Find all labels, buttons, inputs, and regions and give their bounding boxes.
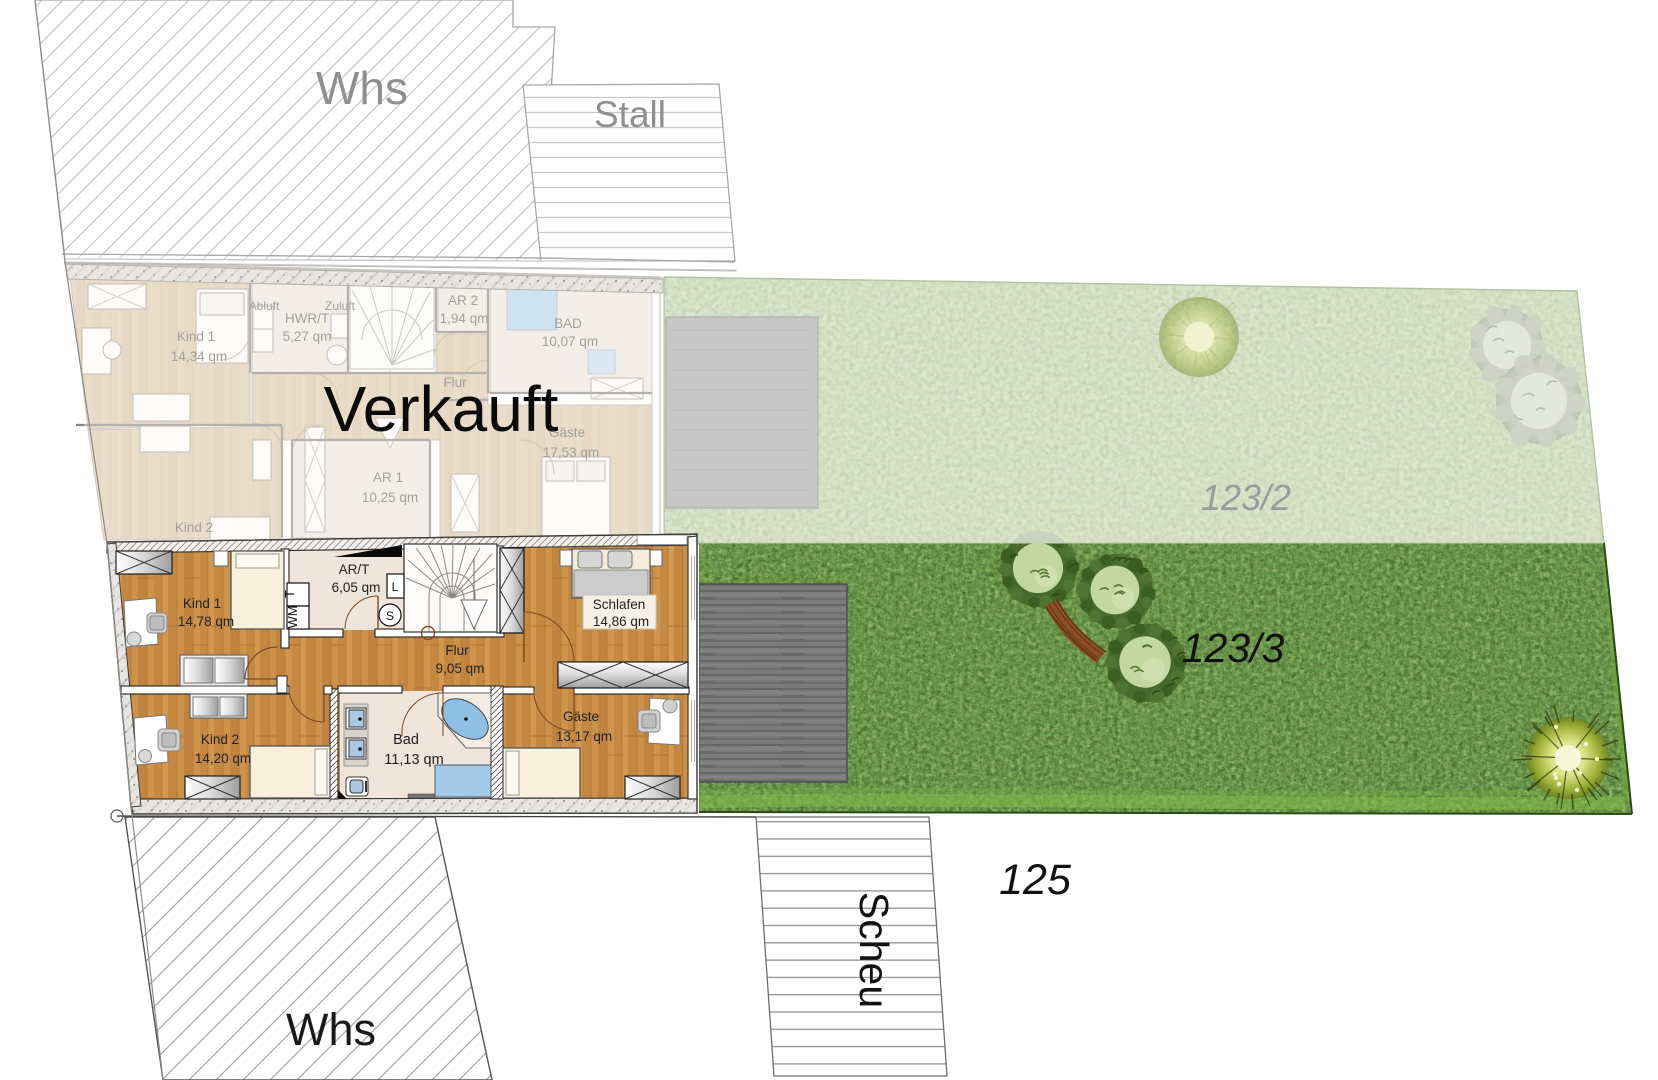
svg-text:Stall: Stall <box>594 94 666 135</box>
svg-text:14,20 qm: 14,20 qm <box>195 751 251 766</box>
svg-text:L: L <box>392 580 399 594</box>
svg-text:Verkauft: Verkauft <box>324 373 559 445</box>
svg-text:WM: WM <box>285 605 300 628</box>
svg-text:Whs: Whs <box>316 62 408 114</box>
svg-text:Kind 1: Kind 1 <box>183 596 221 611</box>
svg-text:14,86 qm: 14,86 qm <box>593 614 649 629</box>
svg-text:11,13 qm: 11,13 qm <box>384 752 443 768</box>
svg-text:125: 125 <box>999 856 1072 904</box>
svg-text:6,05 qm: 6,05 qm <box>332 580 381 595</box>
svg-text:Gäste: Gäste <box>563 709 599 724</box>
svg-text:Scheu: Scheu <box>851 892 897 1008</box>
svg-text:Kind 2: Kind 2 <box>201 732 239 747</box>
svg-text:Bad: Bad <box>393 732 419 748</box>
svg-text:Flur: Flur <box>445 643 469 658</box>
svg-text:AR/T: AR/T <box>339 562 370 577</box>
svg-text:13,17 qm: 13,17 qm <box>556 729 612 744</box>
svg-text:T: T <box>282 590 297 598</box>
svg-text:Schlafen: Schlafen <box>593 597 646 612</box>
svg-text:S: S <box>386 609 394 623</box>
svg-text:14,78 qm: 14,78 qm <box>178 614 234 629</box>
svg-text:123/3: 123/3 <box>1182 625 1285 671</box>
svg-text:Whs: Whs <box>286 1004 376 1055</box>
svg-text:123/2: 123/2 <box>1201 477 1291 518</box>
svg-text:9,05 qm: 9,05 qm <box>436 661 485 676</box>
